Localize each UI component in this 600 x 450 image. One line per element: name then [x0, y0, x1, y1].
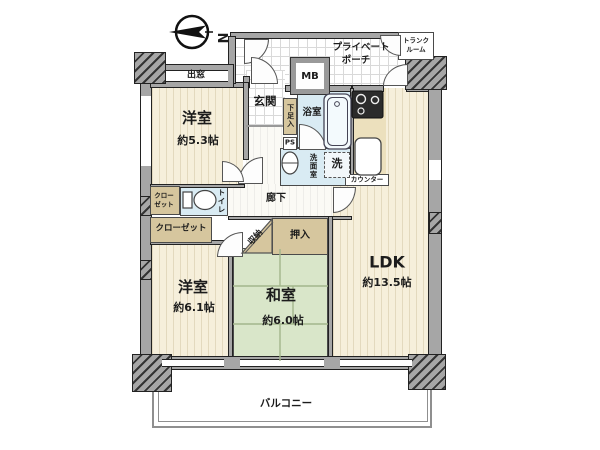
- pipe-space-label: PS: [285, 139, 295, 146]
- oshiire-label: 押入: [290, 231, 310, 242]
- bay-window-label: 出窓: [187, 71, 205, 80]
- corridor-label: 廊下: [266, 194, 286, 205]
- japanese-room-size: 約6.0帖: [262, 315, 304, 327]
- washroom-label: 洗面室: [309, 153, 317, 179]
- closet-small-label-2: ゼット: [154, 202, 174, 209]
- private-porch-label-2: ポーチ: [342, 56, 371, 66]
- trunk-room-label-2: ルーム: [406, 47, 425, 54]
- private-porch-label-1: プライベート: [332, 43, 389, 53]
- ldk-size: 約13.5帖: [362, 277, 411, 289]
- floorplan: N 出窓 プライベート ポーチ トランク ルーム MB 玄関 下足入 PS 浴室…: [0, 0, 600, 450]
- ldk-name: LDK: [369, 255, 405, 272]
- laundry-label: 洗: [332, 158, 343, 170]
- toilet-label: トイレ: [217, 188, 225, 214]
- labels-layer: N 出窓 プライベート ポーチ トランク ルーム MB 玄関 下足入 PS 浴室…: [0, 0, 600, 450]
- counter-label: カウンター: [351, 177, 384, 184]
- western-room2-size: 約6.1帖: [173, 302, 215, 314]
- western-room2-name: 洋室: [178, 280, 208, 296]
- compass-north-label: N: [214, 33, 228, 44]
- western-room1-size: 約5.3帖: [177, 135, 219, 147]
- balcony-label: バルコニー: [260, 398, 312, 409]
- closet-long-label: クローゼット: [155, 225, 206, 234]
- trunk-room-label-1: トランク: [403, 38, 429, 45]
- bathroom-label: 浴室: [302, 108, 321, 118]
- shoe-cabinet-label: 下足入: [286, 104, 293, 128]
- meter-box-label: MB: [301, 72, 319, 83]
- western-room1-name: 洋室: [182, 111, 212, 127]
- japanese-room-name: 和室: [266, 288, 296, 304]
- storage-label: 収納: [247, 229, 265, 248]
- closet-small-label-1: クロー: [154, 193, 174, 200]
- entrance-label: 玄関: [254, 95, 277, 107]
